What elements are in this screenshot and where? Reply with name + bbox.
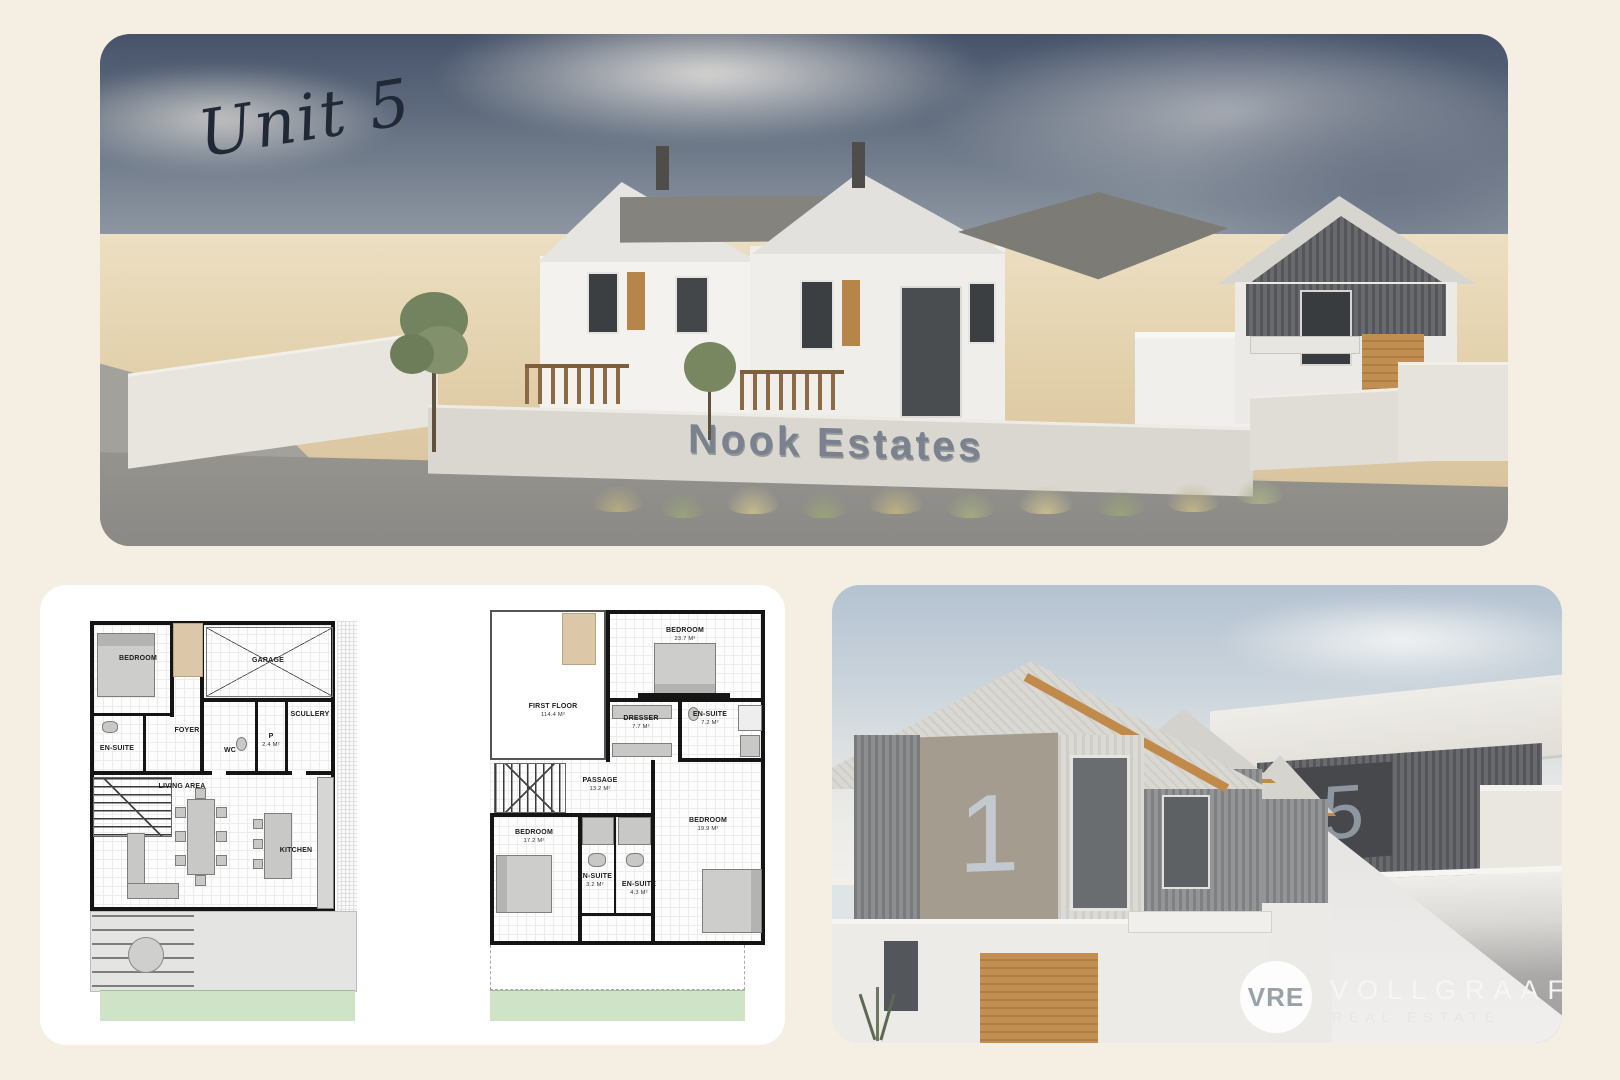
- window: [587, 272, 619, 334]
- room-label: EN-SUITE4.3 m²: [616, 881, 662, 897]
- room-label: P2.4 m²: [258, 733, 284, 749]
- balcony-patch: [562, 613, 596, 665]
- chimney: [852, 142, 865, 188]
- kitchen-counter: [317, 777, 334, 909]
- room-label: DRESSER7.7 m²: [612, 715, 670, 731]
- plan-title-area: 114.4 m²: [508, 712, 598, 719]
- wardrobe: [612, 743, 672, 757]
- chair: [175, 831, 186, 842]
- window: [1300, 290, 1352, 366]
- chair: [216, 831, 227, 842]
- parapet-ledge: [1128, 911, 1272, 933]
- sofa-l: [127, 883, 179, 899]
- wall: [143, 713, 146, 773]
- headboard-wall: [638, 693, 730, 699]
- dining-table: [187, 799, 215, 875]
- balcony-rail: [1250, 336, 1360, 354]
- brand-monogram: VRE: [1248, 982, 1304, 1013]
- patio-table: [128, 937, 164, 973]
- plant-blade: [876, 987, 879, 1041]
- wall: [285, 698, 288, 775]
- wardrobe: [618, 817, 651, 845]
- room-label: FOYER: [162, 727, 212, 736]
- room-label: SCULLERY: [284, 711, 336, 720]
- entry-door-dark: [884, 941, 918, 1011]
- chimney: [656, 146, 669, 190]
- lawn: [100, 990, 355, 1021]
- room-label: PASSAGE13.2 m²: [568, 777, 632, 793]
- shower: [738, 705, 762, 731]
- room-name: BEDROOM: [108, 655, 168, 664]
- room-name: BEDROOM: [650, 627, 720, 636]
- staircase: [494, 763, 566, 813]
- gable-face-1-left: [854, 735, 920, 931]
- chair: [216, 807, 227, 818]
- window-wood: [842, 280, 860, 346]
- wall: [200, 698, 335, 702]
- unit1-number-panel: 1: [920, 733, 1058, 934]
- room-name: BEDROOM: [502, 829, 566, 838]
- wardrobe: [582, 817, 614, 845]
- room-area: 13.2 m²: [568, 786, 632, 793]
- window: [1162, 795, 1210, 889]
- room-name: KITCHEN: [268, 847, 324, 856]
- bed-main: [654, 643, 716, 697]
- wall: [578, 913, 655, 916]
- grass-tuft: [946, 492, 996, 518]
- room-label: BEDROOM17.2 m²: [502, 829, 566, 845]
- room-label: KITCHEN: [268, 847, 324, 856]
- wall: [678, 758, 765, 762]
- estate-sign-text: Nook Estates: [688, 415, 984, 469]
- room-area: 4.3 m²: [616, 890, 662, 897]
- room-area: 7.7 m²: [612, 724, 670, 731]
- street-render-panel: 5 1 VRE VOLLGRAAFF REAL ESTATE: [832, 585, 1562, 1043]
- room-name: GARAGE: [228, 657, 308, 666]
- room-area: 2.4 m²: [258, 742, 284, 749]
- room-area: 23.7 m²: [650, 636, 720, 643]
- room-area: 3.2 m²: [572, 882, 618, 889]
- room-name: SCULLERY: [284, 711, 336, 720]
- grass-tuft: [592, 486, 644, 512]
- wall: [606, 610, 765, 614]
- grass-tuft: [1018, 486, 1074, 514]
- grass-tuft: [726, 486, 780, 514]
- chair: [195, 875, 206, 886]
- tree-canopy: [390, 334, 434, 374]
- stool: [253, 839, 263, 849]
- unit-number-1: 1: [958, 768, 1019, 897]
- wall: [606, 610, 610, 762]
- window: [1070, 755, 1130, 911]
- pergola: [740, 370, 844, 410]
- room-name: LIVING AREA: [145, 783, 219, 792]
- room-name: P: [258, 733, 284, 742]
- wall: [678, 698, 682, 762]
- chair: [175, 807, 186, 818]
- bed-right: [702, 869, 762, 933]
- room-name: EN-SUITE: [572, 873, 618, 882]
- hero-render-panel: Nook Estates Unit 5: [100, 34, 1508, 546]
- tree-trunk: [708, 386, 711, 440]
- basin: [740, 735, 760, 757]
- window: [968, 282, 996, 344]
- room-label: EN-SUITE7.2 m²: [684, 711, 736, 727]
- wall: [90, 713, 172, 716]
- floor-plans-panel: BEDROOM GARAGE FOYER EN-SUITE WC P2.4 m²…: [40, 585, 785, 1045]
- bed-left: [496, 855, 552, 913]
- room-name: EN-SUITE: [616, 881, 662, 890]
- tree-canopy: [684, 342, 736, 392]
- entry-threshold: [173, 623, 203, 677]
- brand-name: VOLLGRAAFF: [1330, 975, 1562, 1006]
- room-label: WC: [212, 747, 248, 756]
- brand-logo-circle: VRE: [1240, 961, 1312, 1033]
- grass-tuft: [1096, 490, 1146, 516]
- kitchen-island: [264, 813, 292, 879]
- basin: [102, 721, 118, 733]
- door-gap: [292, 771, 306, 775]
- room-name: EN-SUITE: [684, 711, 736, 720]
- yard-outline: [490, 945, 745, 990]
- room-name: WC: [212, 747, 248, 756]
- window-wood: [627, 272, 645, 330]
- window: [675, 276, 709, 334]
- plan-title: FIRST FLOOR114.4 m²: [508, 703, 598, 719]
- room-area: 7.2 m²: [684, 720, 736, 727]
- window: [800, 280, 834, 350]
- estate-sign: Nook Estates: [688, 415, 1018, 471]
- grass-tuft: [800, 492, 848, 518]
- boundary-wall-farright: [1398, 362, 1508, 461]
- lawn: [490, 990, 745, 1021]
- pergola: [525, 364, 629, 404]
- room-label: BEDROOM19.9 m²: [676, 817, 740, 833]
- grass-tuft: [868, 486, 924, 514]
- door-gap: [212, 771, 226, 775]
- grass-tuft: [1236, 478, 1284, 504]
- glass-facade: [900, 286, 962, 418]
- wall: [490, 813, 494, 945]
- chair: [175, 855, 186, 866]
- grass-tuft: [1166, 484, 1220, 512]
- room-name: DRESSER: [612, 715, 670, 724]
- bed: [97, 633, 155, 697]
- room-area: 17.2 m²: [502, 838, 566, 845]
- basin: [626, 853, 644, 867]
- room-label: EN-SUITE: [92, 745, 142, 754]
- plan-title-text: FIRST FLOOR: [508, 703, 598, 712]
- room-name: BEDROOM: [676, 817, 740, 826]
- stool: [253, 819, 263, 829]
- room-name: EN-SUITE: [92, 745, 142, 754]
- chair: [216, 855, 227, 866]
- grass-tuft: [660, 494, 706, 518]
- basin: [588, 853, 606, 867]
- room-name: PASSAGE: [568, 777, 632, 786]
- stool: [253, 859, 263, 869]
- room-label: EN-SUITE3.2 m²: [572, 873, 618, 889]
- room-name: FOYER: [162, 727, 212, 736]
- room-area: 19.9 m²: [676, 826, 740, 833]
- room-label: BEDROOM23.7 m²: [650, 627, 720, 643]
- room-label: BEDROOM: [108, 655, 168, 664]
- brand-tagline: REAL ESTATE: [1332, 1009, 1501, 1025]
- garage-door-1: [980, 953, 1098, 1043]
- room-label: GARAGE: [228, 657, 308, 666]
- wall: [614, 813, 616, 915]
- room-label: LIVING AREA: [145, 783, 219, 792]
